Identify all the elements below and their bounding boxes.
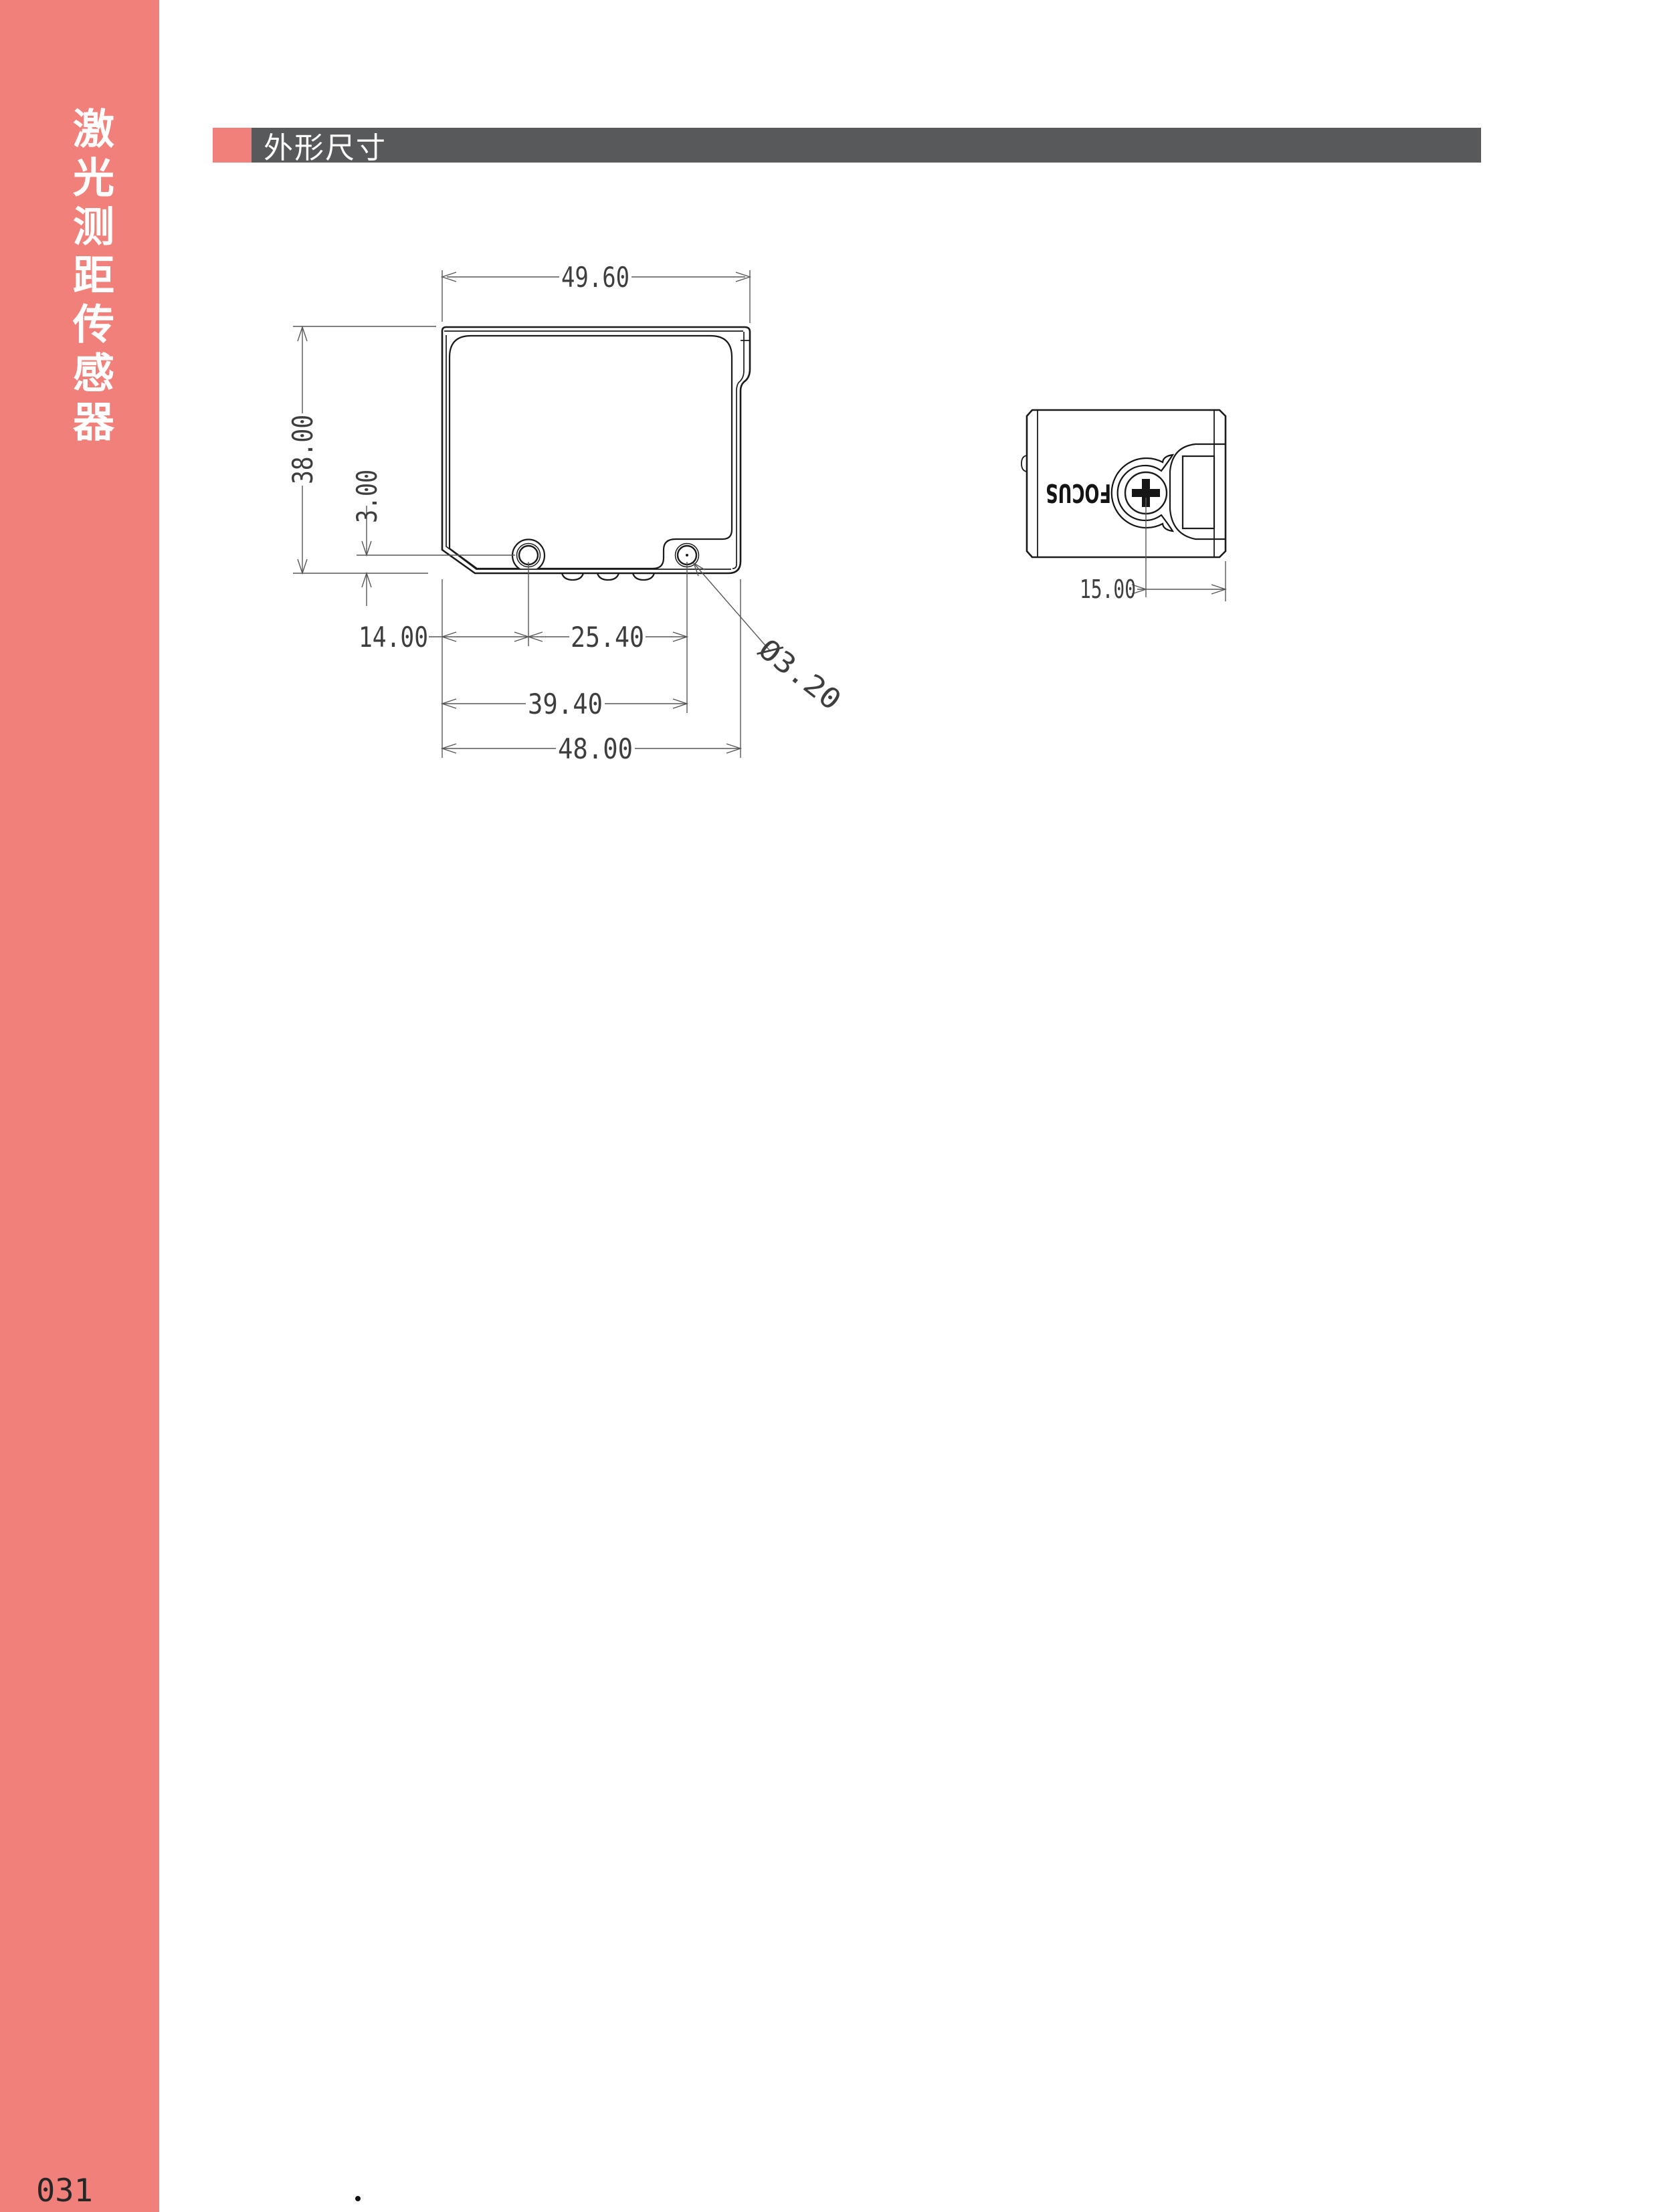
right-hole-center-mark bbox=[686, 554, 688, 557]
dim-width-top: 49.60 bbox=[561, 261, 629, 294]
side-view-dimensions: 15.00 bbox=[1080, 498, 1226, 604]
footer-dot bbox=[355, 2196, 361, 2201]
dimension-drawing: 49.60 38.00 3.00 14.00 25.40 39.40 48.00… bbox=[0, 0, 1659, 2212]
front-inner-outline bbox=[450, 336, 732, 569]
dim-screw-to-edge: 15.00 bbox=[1080, 575, 1136, 604]
side-view: FOCUS bbox=[1021, 410, 1226, 557]
dim-hole-spacing: 25.40 bbox=[571, 621, 644, 653]
bottom-connector-bumps bbox=[562, 573, 654, 580]
side-connector-outline bbox=[1170, 444, 1226, 539]
front-outer-outline bbox=[442, 327, 750, 573]
front-second-outline bbox=[444, 331, 750, 569]
dim-width-bottom: 48.00 bbox=[558, 732, 633, 765]
dim-height: 38.00 bbox=[286, 415, 319, 484]
dim-hole-to-bottom: 3.00 bbox=[351, 470, 383, 523]
side-connector-inner bbox=[1183, 456, 1214, 528]
dim-left-to-right-hole: 39.40 bbox=[528, 688, 603, 720]
dim-left-to-hole: 14.00 bbox=[359, 621, 428, 653]
left-mounting-hole bbox=[519, 546, 538, 565]
dim-hole-diameter: Ø3.20 bbox=[753, 632, 848, 716]
focus-label: FOCUS bbox=[1046, 478, 1111, 508]
catalog-page: 激光测距传感器 031 外形尺寸 bbox=[0, 0, 1659, 2212]
front-view bbox=[442, 327, 750, 580]
